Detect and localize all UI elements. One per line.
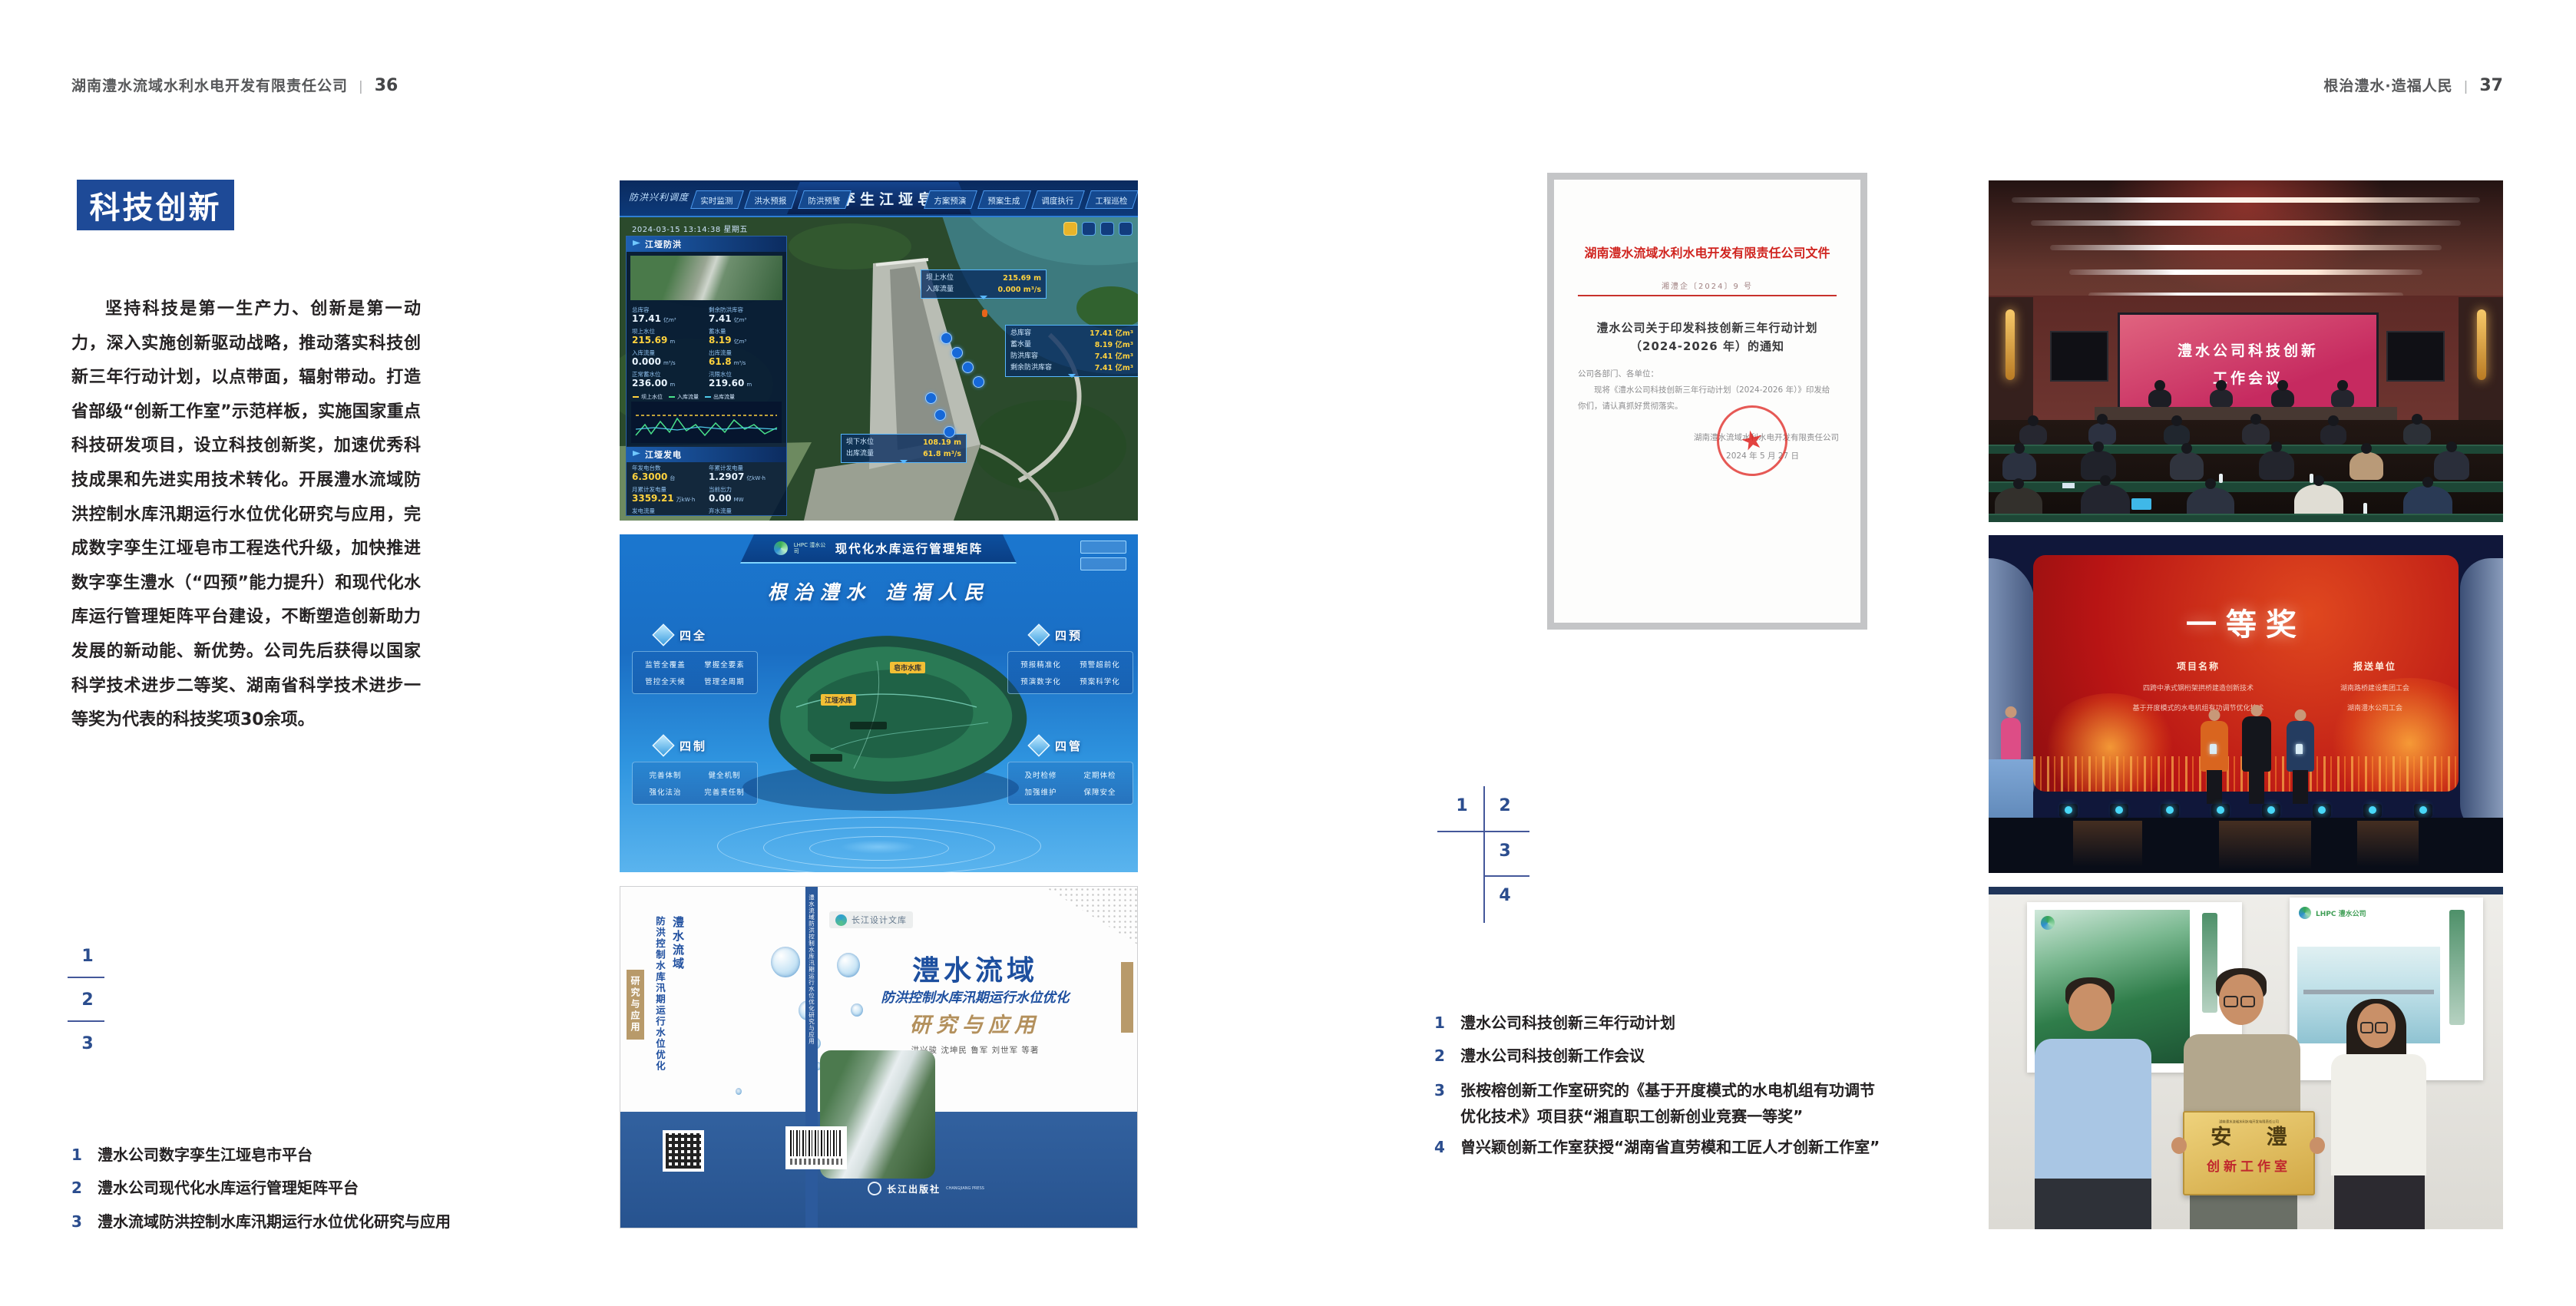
- gate-pin-icon: [934, 409, 946, 421]
- attendee-silhouette: [2259, 451, 2294, 480]
- back-cover-subtitle: 研究与应用: [627, 970, 644, 1040]
- glasses-icon: [2360, 1022, 2373, 1033]
- wall-top-strip: [1989, 887, 2503, 894]
- figure-key-left-2: 2: [78, 990, 97, 1010]
- panel-flag-icon: [633, 240, 640, 248]
- panel-siquan: 四全 监管全覆盖掌握全要素 管控全天候管理全周期: [632, 625, 758, 694]
- presenter-silhouette: [2331, 389, 2354, 408]
- plaque-title: 安 澧: [2184, 1125, 2313, 1151]
- matrix-header: LHPC 澧水公司 现代化水库运行管理矩阵: [740, 534, 1017, 564]
- caption-right-2: 2 澧水公司科技创新工作会议: [1434, 1044, 1645, 1068]
- company-name: 湖南澧水流域水利水电开发有限责任公司: [71, 78, 348, 94]
- panel-sizhi: 四制 完善体制健全机制 强化法治完善责任制: [632, 736, 758, 805]
- spine-title: 澧水流域防洪控制水库汛期运行水位优化研究与应用: [808, 894, 816, 1125]
- front-title-region: 澧水流域: [822, 948, 1129, 988]
- photo-first-prize-stage: 一等奖 项目名称 四跨中承式钢桁架拱桥建造创新技术 基于开度模式的水电机组有功调…: [1989, 535, 2503, 873]
- header-button: [1080, 557, 1126, 570]
- woman-white-tee: [2331, 1054, 2426, 1175]
- light-strip: [2069, 269, 2422, 275]
- document-number: 湘澧企〔2024〕9 号: [1554, 279, 1860, 291]
- floor-reflection: [2219, 821, 2311, 870]
- panel-flood-header: 江垭防洪: [627, 236, 786, 252]
- trophy-icon: [2210, 744, 2217, 754]
- figure-reservoir-matrix-platform: LHPC 澧水公司 现代化水库运行管理矩阵 根治澧水 造福人民 皂市水库 江垭水…: [620, 534, 1138, 872]
- attendee-silhouette: [2019, 425, 2047, 445]
- cube-icon: [652, 734, 674, 756]
- tab-flood-forecast: 洪水预报: [744, 190, 798, 209]
- attendee-silhouette: [2242, 423, 2270, 445]
- light-strip: [2050, 245, 2442, 250]
- gate-pin-icon: [944, 426, 955, 438]
- dashboard-corner-icons: [1063, 222, 1133, 236]
- presenter-suit: [2242, 716, 2271, 772]
- light-strip: [2012, 197, 2480, 203]
- plaque-subtitle: 创新工作室: [2184, 1156, 2313, 1175]
- publisher-logo: 长江出版社 CHANGJIANG PRESS: [865, 1182, 987, 1195]
- caption-right-3: 3 张桉榕创新工作室研究的《基于开度模式的水电机组有功调节 优化技术》项目获“湘…: [1434, 1077, 1875, 1129]
- basin-terrain-map: [723, 615, 1038, 815]
- front-title-sub: 研究与应用: [822, 1008, 1129, 1038]
- face: [2068, 984, 2111, 1031]
- host-silhouette: [2001, 718, 2021, 761]
- tissue-box: [2131, 498, 2151, 510]
- back-cover-title: 澧水流域 防洪控制水库汛期运行水位优化: [650, 916, 686, 1108]
- figure-digital-twin-dashboard: 防洪兴利调度 数字孪生江垭皂市 实时监测 洪水预报 防洪预警 方案预演 预案生成…: [620, 180, 1138, 521]
- side-display: [2386, 331, 2445, 382]
- brochure-spread: 湖南澧水流域水利水电开发有限责任公司|36 科技创新 坚持科技是第一生产力、创新…: [0, 0, 2576, 1306]
- matrix-slogan: 根治澧水 造福人民: [620, 577, 1138, 605]
- lhpc-logo-text: LHPC 澧水公司: [2316, 908, 2366, 918]
- attendee-silhouette: [2088, 423, 2116, 445]
- tab-flood-warning: 防洪预警: [798, 190, 852, 209]
- book-spine: 澧水流域防洪控制水库汛期运行水位优化研究与应用: [805, 887, 818, 1228]
- tab-project-inspection: 工程巡检: [1085, 190, 1138, 209]
- award-unit-column: 报送单位 湖南路桥建设集团工会 湖南澧水公司工会: [2287, 660, 2459, 713]
- publisher-logo-icon: [868, 1182, 881, 1195]
- side-display: [2050, 331, 2108, 382]
- gate-pin-icon: [951, 347, 963, 359]
- attendee-silhouette: [2320, 425, 2346, 445]
- dashboard-timestamp: 2024-03-15 13:14:38 星期五: [632, 223, 748, 234]
- tab-plan-rehearsal: 方案预演: [924, 190, 977, 209]
- cube-icon: [652, 623, 674, 646]
- matrix-title: 现代化水库运行管理矩阵: [835, 540, 984, 557]
- award-headline: 一等奖: [2033, 600, 2459, 644]
- chart-legend: 坝上水位 入库流量 出库流量: [627, 392, 786, 401]
- ripple-glow: [840, 840, 917, 854]
- figure-key-divider: [68, 1020, 104, 1022]
- figure-key-divider: [1437, 831, 1529, 832]
- dashboard-side-panel: 江垭防洪 总库容17.41亿m³ 剩余防洪库容7.41亿m³ 坝上水位215.6…: [626, 236, 787, 516]
- callout-upstream-level: 坝上水位215.69 m 入库流量0.000 m³/s: [921, 269, 1047, 299]
- gate-pin-icon: [962, 362, 974, 373]
- glasses-icon: [2375, 1022, 2388, 1033]
- attendee-silhouette: [2164, 425, 2190, 445]
- stage-light-icon: [2059, 804, 2078, 818]
- floor-reflection: [2357, 821, 2419, 867]
- document-body: 现将《澧水公司科技创新三年行动计划（2024-2026 年）》印发给你们，请认真…: [1578, 382, 1836, 415]
- dashboard-brand-label: 防洪兴利调度: [629, 190, 689, 203]
- panel-siyu: 四预 预报精准化预警超前化 预演数字化预案科学化: [1007, 625, 1133, 694]
- stage-light-icon: [2363, 804, 2382, 818]
- meeting-table-row: [1989, 445, 2503, 454]
- plaque-org: 湖南澧水流域水利水电开发有限责任公司: [2203, 1119, 2296, 1123]
- target-icon: [1100, 222, 1114, 236]
- stage-light-icon: [2161, 804, 2179, 818]
- callout-downstream-level: 坝下水位108.19 m 出库流量61.8 m³/s: [841, 434, 967, 463]
- figure-book-cover: 澧水流域 防洪控制水库汛期运行水位优化 研究与应用 澧水流域防洪控制水库汛期运行…: [620, 886, 1138, 1228]
- water-bottle: [2219, 474, 2223, 483]
- presenter-silhouette: [2210, 389, 2233, 408]
- caption-right-1: 1 澧水公司科技创新三年行动计划: [1434, 1011, 1675, 1035]
- water-level-chart: [631, 402, 782, 443]
- header-divider: |: [2464, 79, 2469, 94]
- photo-innovation-meeting: 澧水公司科技创新 工作会议: [1989, 180, 2503, 522]
- figure-key-left-1: 1: [78, 947, 97, 966]
- figure-key-right-2: 2: [1496, 796, 1514, 815]
- worker-marker: [982, 309, 987, 317]
- figure-key-right-1: 1: [1453, 796, 1471, 815]
- left-page-header: 湖南澧水流域水利水电开发有限责任公司|36: [71, 74, 398, 95]
- page-number-37: 37: [2479, 76, 2503, 95]
- tab-dispatch-execution: 调度执行: [1031, 190, 1085, 209]
- presenter-silhouette: [2148, 389, 2171, 408]
- figure-key-right-3: 3: [1496, 841, 1514, 861]
- front-title-main: 防洪控制水库汛期运行水位优化: [818, 987, 1132, 1007]
- document-salutation: 公司各部门、各单位：: [1578, 366, 1658, 382]
- dark-trousers: [2035, 1179, 2151, 1229]
- header-button: [1080, 541, 1126, 554]
- attendee-silhouette: [2002, 452, 2036, 480]
- tan-accent-bar: [1121, 962, 1133, 1033]
- caption-left-3: 3 澧水流域防洪控制水库汛期运行水位优化研究与应用: [71, 1210, 451, 1234]
- layers-icon: [1082, 222, 1096, 236]
- glasses-icon: [2224, 996, 2238, 1007]
- map-tag-zaoshi: 皂市水库: [890, 662, 925, 673]
- attendee-silhouette: [2403, 423, 2431, 445]
- dark-skirt: [2334, 1175, 2425, 1229]
- document-red-rule: [1578, 295, 1837, 296]
- user-icon: [1063, 222, 1077, 236]
- header-divider: |: [359, 79, 364, 94]
- figure-key-vline: [1483, 786, 1485, 923]
- floor-reflection: [2073, 821, 2142, 867]
- callout-capacity: 总库容17.41 亿m³ 蓄水量8.19 亿m³ 防洪库容7.41 亿m³ 剩余…: [1005, 325, 1138, 377]
- panel-flag-icon: [633, 451, 640, 458]
- trophy-icon: [2296, 744, 2303, 754]
- hand: [2171, 1137, 2187, 1154]
- chat-icon: [1119, 222, 1133, 236]
- glasses-icon: [2240, 996, 2255, 1007]
- dashboard-tabs-left: 实时监测 洪水预报 防洪预警: [693, 190, 848, 209]
- lhpc-logo-text: LHPC 澧水公司: [794, 542, 829, 554]
- changjiang-design-logo-icon: [835, 914, 847, 926]
- water-droplet: [736, 1088, 742, 1095]
- stage-light-icon: [2110, 804, 2128, 818]
- attendee-silhouette: [2434, 451, 2469, 480]
- photo-workshop-plaque: LHPC 澧水公司 湖南澧水流域水利水电开发有限责任公司 安 澧 创新工作室: [1989, 887, 2503, 1229]
- gate-pin-icon: [973, 376, 984, 388]
- figure-key-right-4: 4: [1496, 886, 1514, 905]
- award-project-column: 项目名称 四跨中承式钢桁架拱桥建造创新技术 基于开度模式的水电机组有功调节优化技…: [2110, 660, 2287, 713]
- slogan: 根治澧水·造福人民: [2323, 78, 2452, 94]
- figure-key-left-3: 3: [78, 1034, 97, 1053]
- page-number-36: 36: [375, 76, 398, 95]
- meeting-table-row: [1989, 514, 2503, 522]
- lhpc-logo-icon: [774, 541, 788, 555]
- stage-frame-right: [2460, 558, 2503, 835]
- innovation-workshop-plaque: 湖南澧水流域水利水电开发有限责任公司 安 澧 创新工作室: [2183, 1111, 2315, 1195]
- calligraphy-bar: [2449, 910, 2465, 1025]
- dashboard-tabs-right: 方案预演 预案生成 调度执行 工程巡检: [927, 190, 1136, 209]
- document-title-line2: （2024-2026 年）的通知: [1554, 338, 1860, 354]
- stage-light-icon: [2262, 804, 2280, 818]
- tab-plan-generation: 预案生成: [977, 190, 1031, 209]
- caption-left-1: 1 澧水公司数字孪生江垭皂市平台: [71, 1143, 312, 1167]
- hand: [2310, 1137, 2325, 1154]
- attendee-silhouette: [2170, 452, 2204, 480]
- right-page-header: 根治澧水·造福人民|37: [2323, 74, 2503, 95]
- lhpc-logo-icon: [2041, 916, 2055, 930]
- presenter-silhouette: [2271, 389, 2294, 408]
- tab-realtime-monitoring: 实时监测: [690, 190, 744, 209]
- bridge-deck: [2303, 990, 2434, 994]
- figure-key-divider: [1483, 875, 1529, 877]
- power-stats-grid: 年发电台数6.3000台 年累计发电量1.2907亿kW·h 月累计发电量335…: [627, 462, 786, 516]
- gate-pin-icon: [925, 392, 937, 404]
- calligraphy-bar: [2202, 913, 2217, 1013]
- cube-icon: [1027, 734, 1050, 756]
- figure-key-divider: [68, 977, 104, 978]
- body-paragraph: 坚持科技是第一生产力、创新是第一动力，深入实施创新驱动战略，推动落实科技创新三年…: [71, 293, 421, 738]
- cube-icon: [1027, 623, 1050, 646]
- wall-lamp-icon: [2006, 309, 2015, 380]
- stage-light-icon: [2414, 804, 2432, 818]
- series-tag: 长江设计文库: [829, 911, 913, 928]
- document-red-header: 湖南澧水流域水利水电开发有限责任公司文件: [1554, 243, 1860, 261]
- barcode: [785, 1126, 847, 1169]
- map-tag-jiangya: 江垭水库: [821, 694, 856, 706]
- dam-thumbnail: [630, 256, 782, 300]
- gate-pin-icon: [941, 332, 952, 344]
- figure-official-document: 湖南澧水流域水利水电开发有限责任公司文件 湘澧企〔2024〕9 号 澧水公司关于…: [1547, 173, 1867, 630]
- qr-code: [663, 1130, 704, 1172]
- panel-siguan: 四管 及时检修定期体检 加强维护保障安全: [1007, 736, 1133, 805]
- map-tag-small: [850, 722, 887, 729]
- section-badge-tech-innovation: 科技创新: [77, 180, 234, 230]
- attendee-silhouette: [2349, 452, 2383, 480]
- caption-left-2: 2 澧水公司现代化水库运行管理矩阵平台: [71, 1176, 359, 1200]
- water-droplet: [771, 947, 800, 977]
- map-tag-small: [810, 754, 842, 762]
- flood-stats-grid: 总库容17.41亿m³ 剩余防洪库容7.41亿m³ 坝上水位215.69m 蓄水…: [627, 304, 786, 392]
- paper-sheet: [2062, 483, 2075, 488]
- caption-right-4: 4 曾兴颖创新工作室获授“湖南省直劳模和工匠人才创新工作室”: [1434, 1136, 1880, 1159]
- man-blue-polo: [2035, 1039, 2151, 1180]
- stage-light-icon: [2211, 804, 2230, 818]
- stage-light-icon: [2313, 804, 2331, 818]
- document-title-line1: 澧水公司关于印发科技创新三年行动计划: [1554, 319, 1860, 336]
- light-strip: [2031, 220, 2461, 226]
- lhpc-logo-icon: [2299, 907, 2311, 919]
- wall-lamp-icon: [2477, 309, 2486, 380]
- panel-power-header: 江垭发电: [627, 447, 786, 462]
- attendee-silhouette: [2081, 451, 2116, 480]
